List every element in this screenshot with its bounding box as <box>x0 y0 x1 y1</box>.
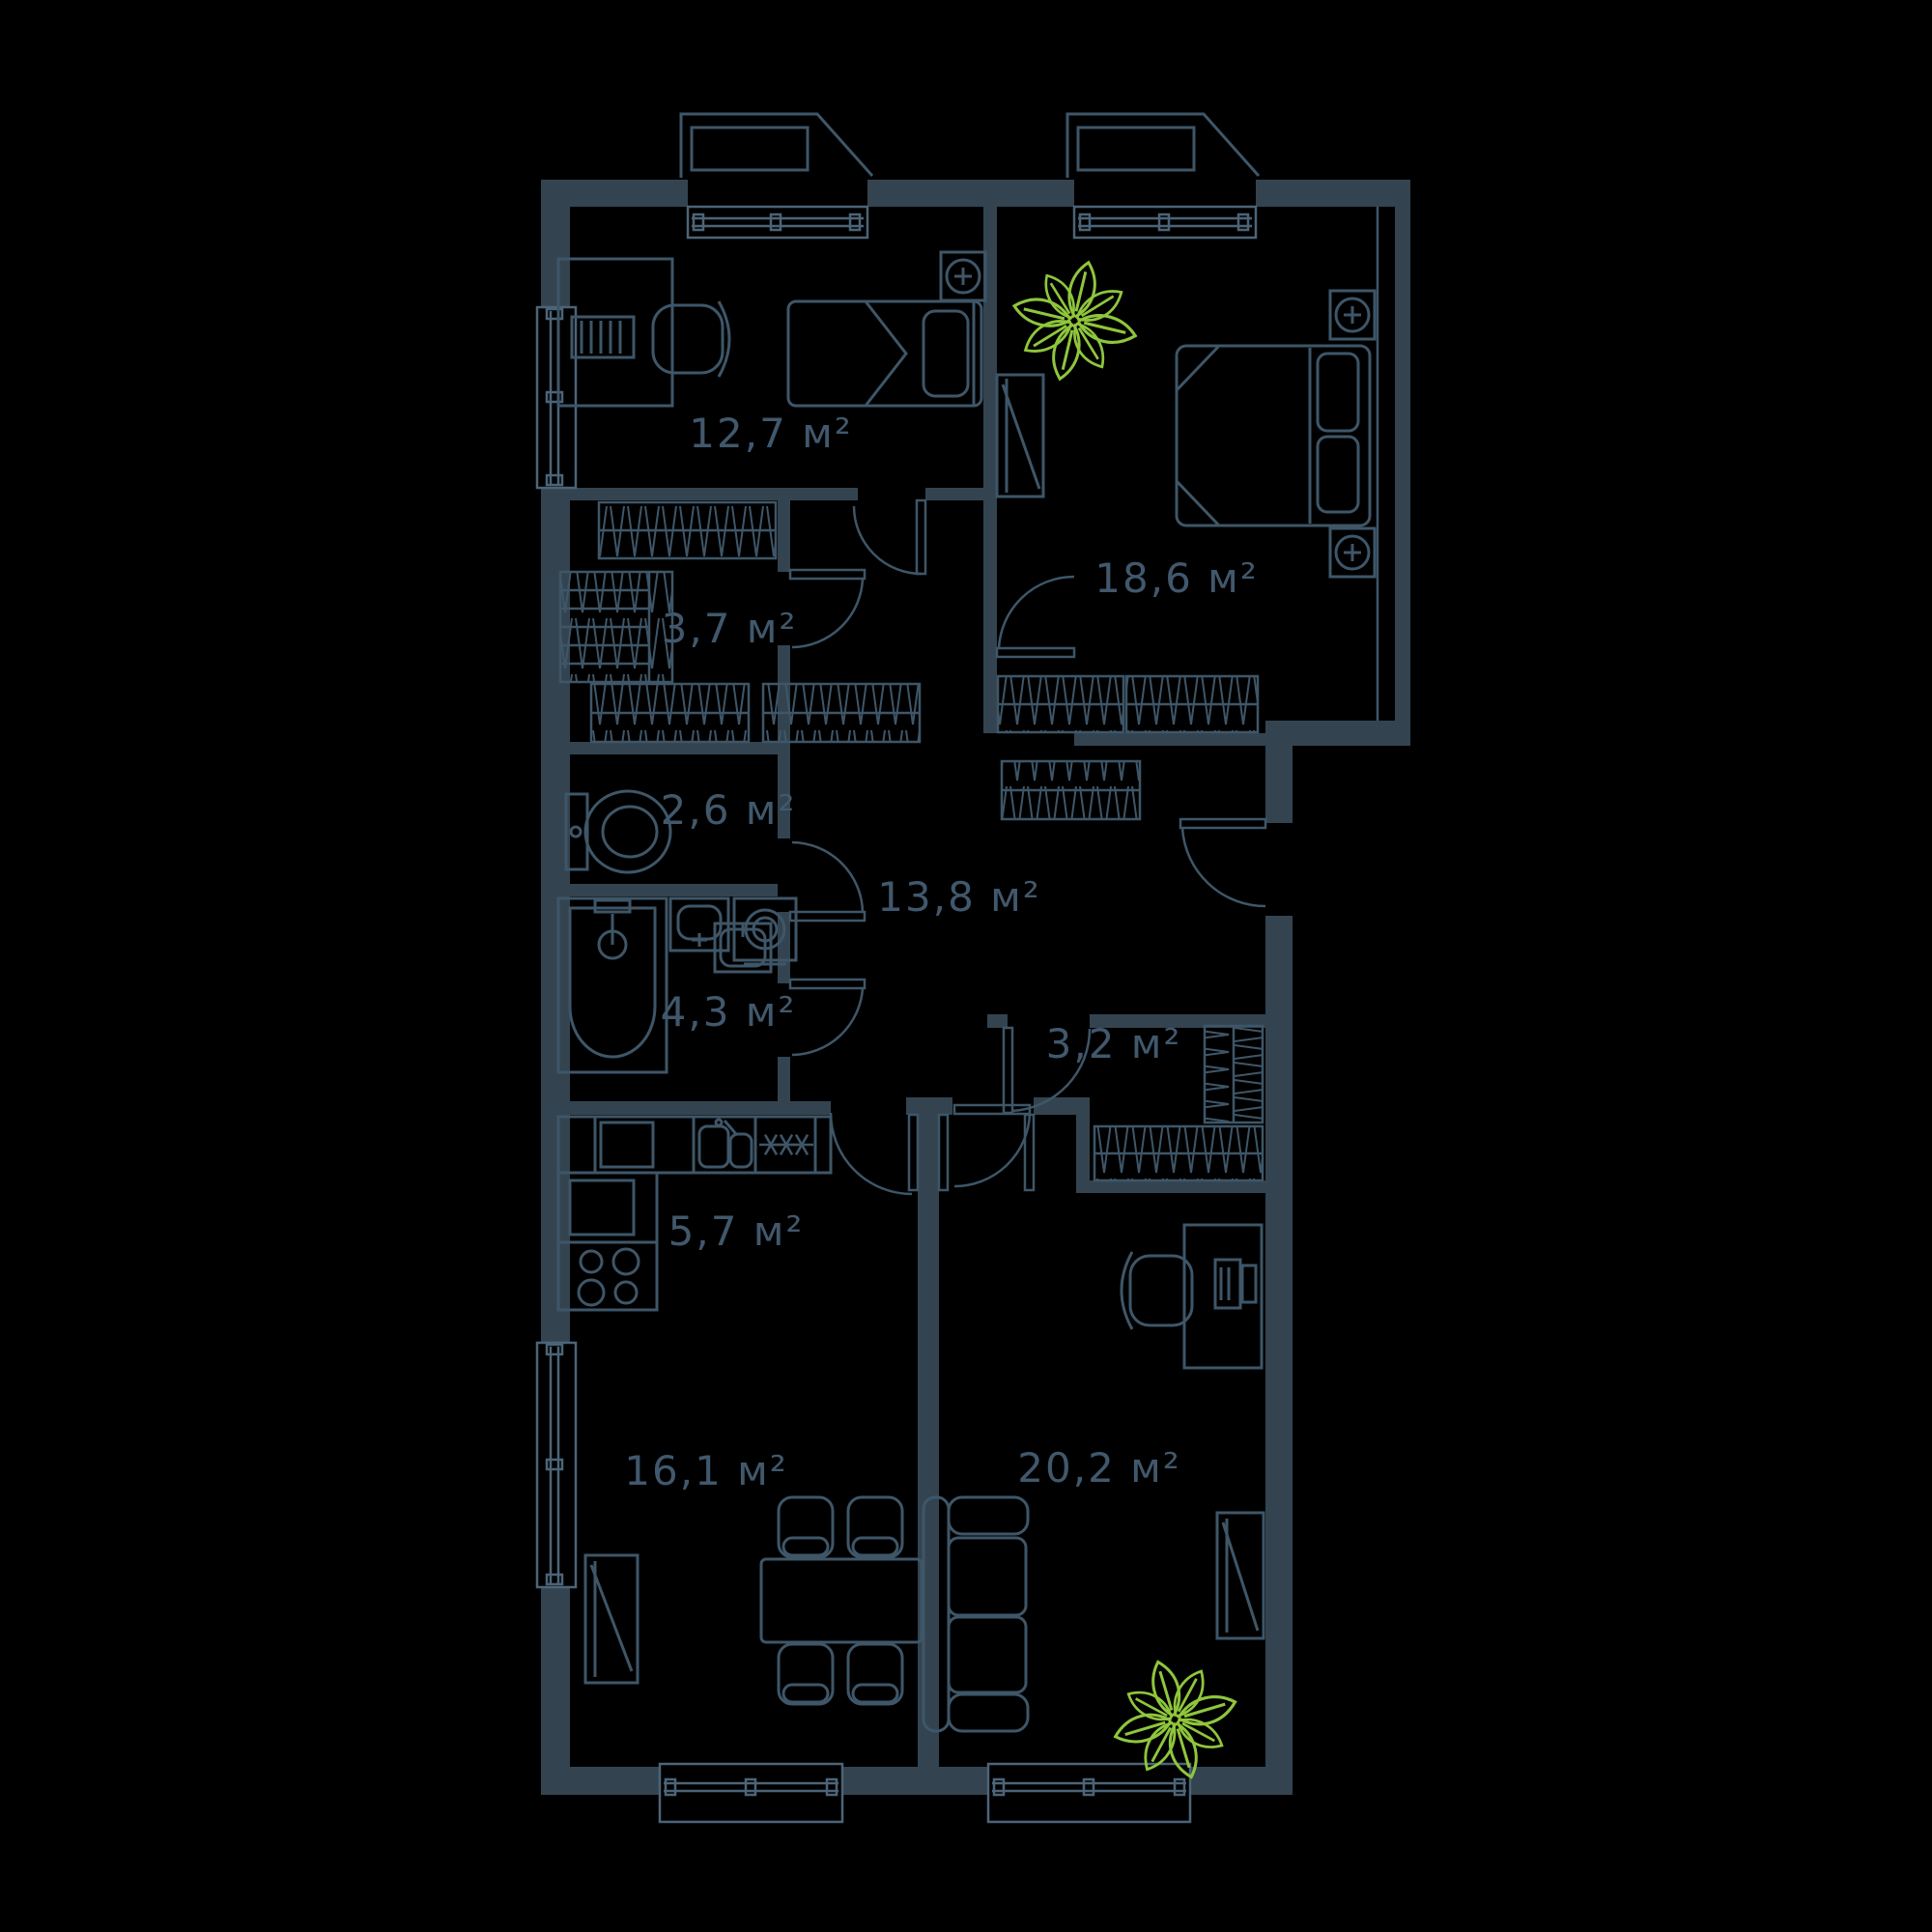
keyboard-icon <box>572 317 634 357</box>
wardrobe-closet-top <box>599 502 776 558</box>
desk <box>1184 1225 1262 1368</box>
floor-plan-canvas: 12,7 м² 18,6 м² 3,7 м² 2,6 м² 13,8 м² 4,… <box>0 0 1932 1932</box>
door-entrance <box>1180 819 1265 906</box>
window-top-left <box>688 207 867 238</box>
window-bottom-left <box>660 1764 842 1822</box>
floor-plan-page: 12,7 м² 18,6 м² 3,7 м² 2,6 м² 13,8 м² 4,… <box>0 0 1932 1932</box>
wall-lamp-icon <box>941 252 985 300</box>
wardrobe-storage-right <box>1205 1026 1263 1122</box>
bathtub-icon <box>558 898 667 1072</box>
wardrobe-bedroom-2-right <box>1126 676 1258 732</box>
room-label-kitchen: 5,7 м² <box>668 1207 805 1255</box>
stove-burner-icon <box>759 1135 813 1155</box>
door-closet <box>790 570 865 647</box>
room-label-closet: 3,7 м² <box>662 605 798 652</box>
shelving-closet <box>560 572 672 682</box>
wardrobe-corridor-left <box>591 684 749 742</box>
window-left-upper <box>537 307 576 488</box>
door-kitchen <box>831 1113 912 1194</box>
door-wc <box>790 842 865 921</box>
room-label-bedroom-1: 12,7 м² <box>689 410 852 457</box>
wardrobe-hallway <box>1002 761 1140 819</box>
room-label-bedroom-3: 20,2 м² <box>1017 1444 1180 1492</box>
wardrobe-corridor-right <box>763 684 920 742</box>
fridge-icon <box>601 1122 653 1167</box>
chair-icon <box>848 1497 902 1557</box>
doors <box>790 500 1265 1194</box>
kitchen-sink-icon <box>699 1120 752 1167</box>
room-label-bedroom-2: 18,6 м² <box>1094 554 1258 602</box>
bedroom-1-furniture <box>558 252 985 406</box>
room-label-bathroom: 4,3 м² <box>661 988 797 1036</box>
plant-icon <box>1002 249 1149 392</box>
room-label-wc: 2,6 м² <box>661 786 797 834</box>
office-chair-icon <box>653 301 729 377</box>
single-bed-icon <box>788 301 981 406</box>
door-bedroom-3 <box>954 1105 1030 1186</box>
mirror-wardrobe-icon <box>997 375 1043 497</box>
sofa-icon <box>923 1497 1028 1731</box>
chair-icon <box>848 1644 902 1704</box>
door-bedroom-1 <box>854 500 925 574</box>
wall-lamp-icon <box>1330 291 1375 339</box>
balcony-bays <box>681 114 1259 178</box>
double-bed-icon <box>1177 346 1370 526</box>
wardrobe-bedroom-2-left <box>998 676 1123 732</box>
door-bedroom-2 <box>997 577 1074 657</box>
chair-icon <box>779 1497 833 1557</box>
chair-icon <box>779 1644 833 1704</box>
room-label-hallway: 13,8 м² <box>877 873 1040 921</box>
office-chair-icon <box>1122 1252 1192 1329</box>
mirror-wardrobe-icon <box>585 1555 638 1683</box>
room-label-living-room: 16,1 м² <box>624 1447 787 1494</box>
toilet-icon <box>566 791 670 872</box>
living-room-furniture <box>585 1497 922 1704</box>
keyboard-icon <box>1215 1260 1256 1308</box>
room-label-storage: 3,2 м² <box>1046 1020 1182 1067</box>
wardrobe-storage-bottom <box>1094 1126 1263 1180</box>
walls <box>541 180 1410 1795</box>
mirror-wardrobe-icon <box>1217 1513 1264 1638</box>
wall-lamp-icon <box>1330 528 1375 577</box>
window-left-lower <box>537 1343 576 1587</box>
door-bathroom <box>790 980 865 1055</box>
window-bottom-right <box>988 1764 1190 1822</box>
dining-table <box>761 1559 922 1642</box>
window-top-right <box>1074 207 1256 238</box>
kitchen-column <box>558 1173 657 1310</box>
